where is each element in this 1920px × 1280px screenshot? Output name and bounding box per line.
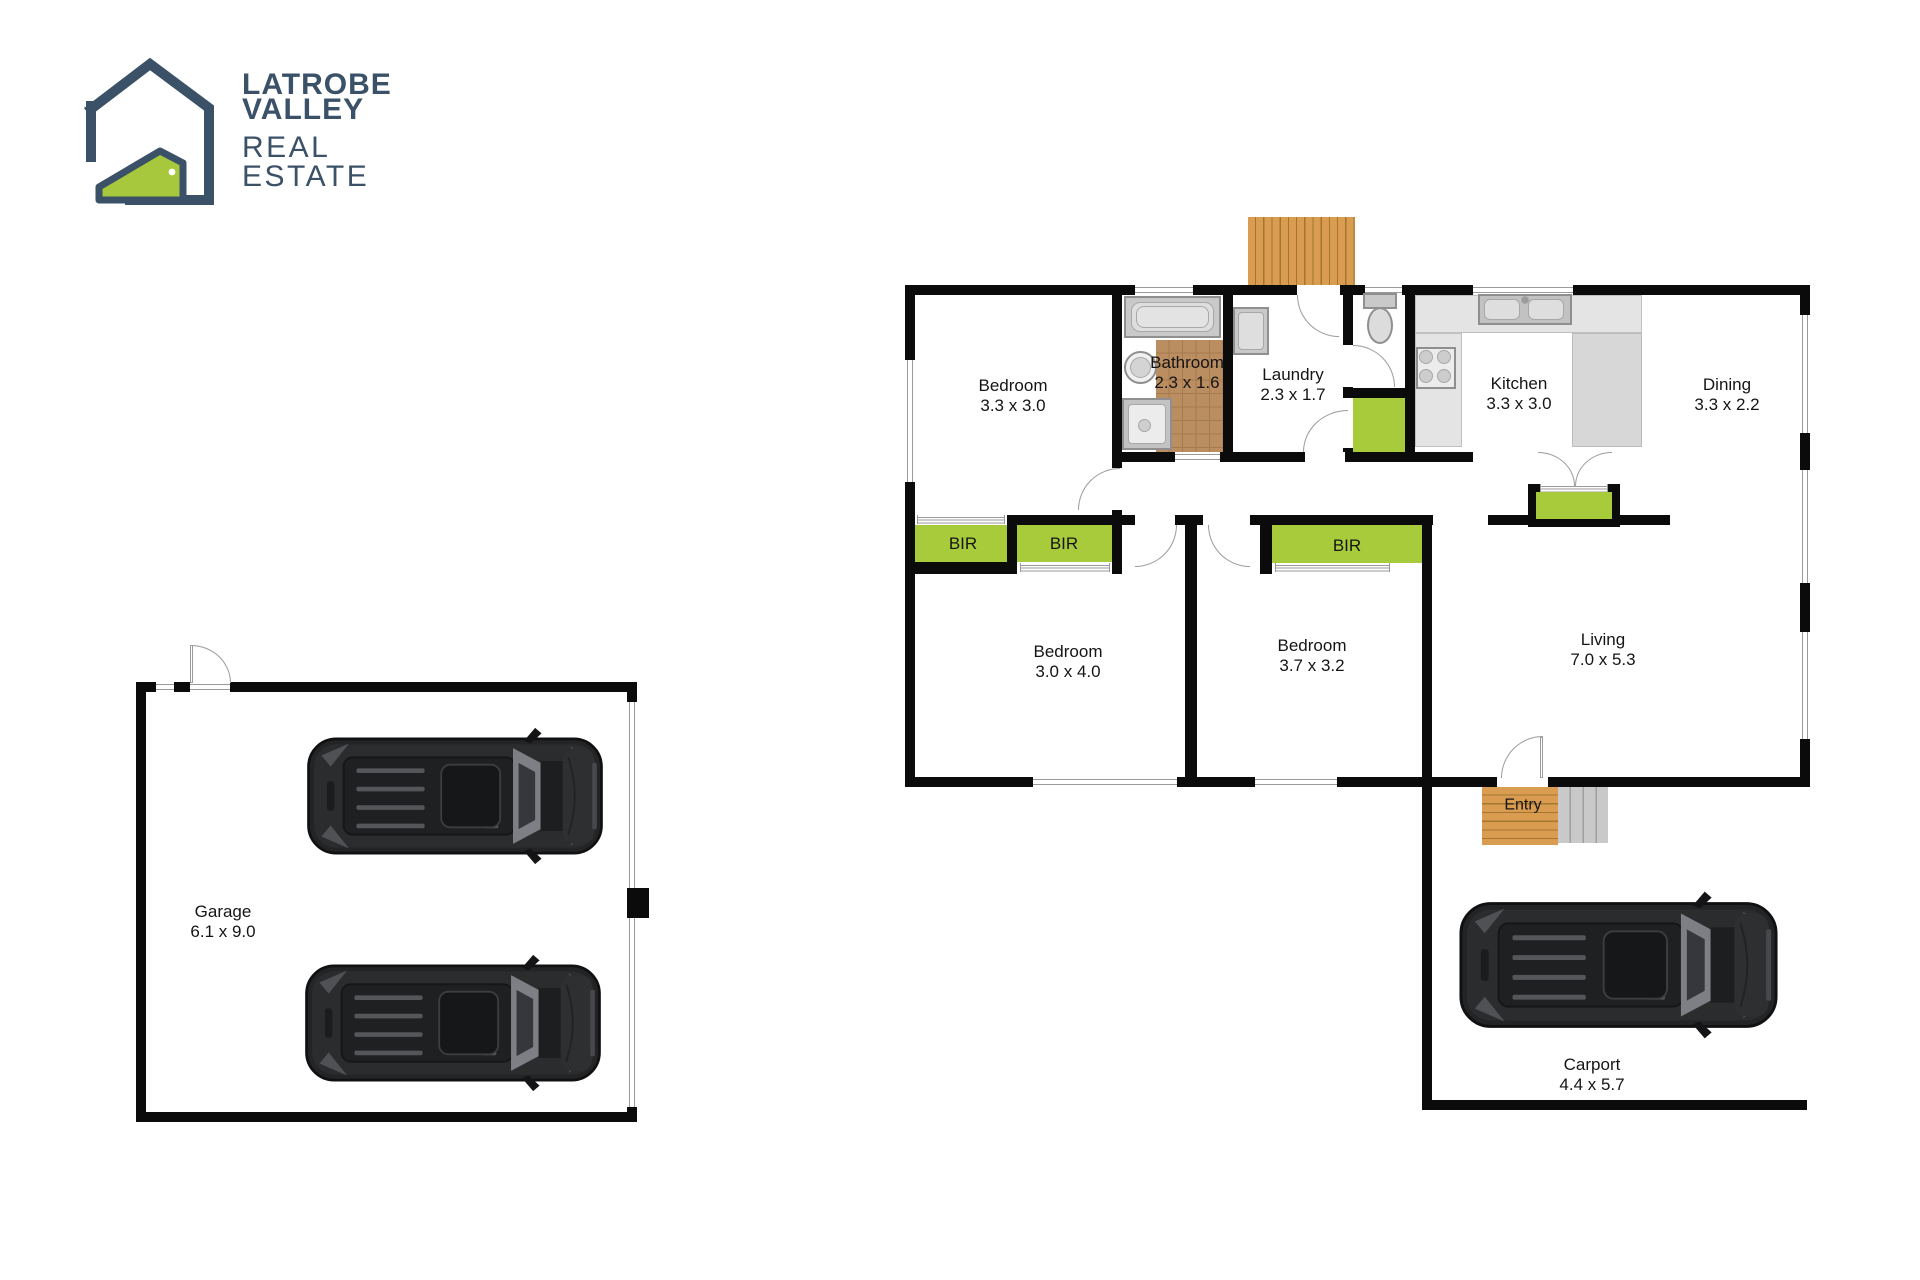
- room-name: Living: [1570, 630, 1635, 650]
- room-label-laundry: Laundry 2.3 x 1.7: [1260, 365, 1325, 405]
- robe-label: BIR: [1333, 536, 1361, 556]
- door-opening: [1343, 345, 1353, 387]
- door-opening: [1203, 515, 1250, 525]
- car-top-view: [300, 953, 606, 1093]
- door-leaf: [1540, 737, 1543, 778]
- door-arc: [1303, 410, 1348, 452]
- kitchen-sink-basin: [1528, 299, 1564, 320]
- robe-track: [1275, 563, 1390, 572]
- door-arc: [1135, 525, 1177, 567]
- room-name: Entry: [1504, 797, 1541, 816]
- brand-line-4: ESTATE: [242, 162, 392, 191]
- robe-track: [917, 515, 1005, 524]
- room-dims: 3.0 x 4.0: [1034, 662, 1103, 682]
- house-logo-icon: [84, 56, 216, 206]
- vanity-basin-inner: [1130, 357, 1151, 378]
- room-label-living: Living 7.0 x 5.3: [1570, 630, 1635, 670]
- burner: [1419, 350, 1433, 364]
- sliding-door-track: [1175, 452, 1220, 462]
- room-dims: 4.4 x 5.7: [1559, 1075, 1624, 1095]
- room-label-kitchen: Kitchen 3.3 x 3.0: [1486, 374, 1551, 414]
- door-arc: [1297, 295, 1339, 337]
- island-bench: [1572, 333, 1642, 447]
- room-name: Kitchen: [1486, 374, 1551, 394]
- door-opening: [1297, 285, 1340, 295]
- garage-door: [627, 918, 637, 1107]
- robe-text: BIR: [1333, 536, 1361, 556]
- car-top-view: [1455, 888, 1782, 1042]
- room-name: Bedroom: [1278, 636, 1347, 656]
- wall: [1112, 452, 1473, 462]
- bathtub-basin: [1136, 306, 1209, 328]
- door-leaf: [190, 645, 193, 683]
- rear-deck: [1248, 217, 1355, 285]
- burner: [1437, 369, 1451, 383]
- door-opening: [1305, 452, 1345, 462]
- room-dims: 3.7 x 3.2: [1278, 656, 1347, 676]
- wall: [1185, 515, 1197, 787]
- door-opening: [1497, 777, 1548, 787]
- robe-label: BIR: [949, 534, 977, 554]
- wall: [1012, 515, 1122, 525]
- room-name: Bathroom: [1150, 353, 1224, 373]
- window: [905, 360, 915, 482]
- room-label-garage: Garage 6.1 x 9.0: [190, 902, 255, 942]
- door-arc: [191, 645, 231, 683]
- room-dims: 2.3 x 1.7: [1260, 385, 1325, 405]
- room-name: Carport: [1559, 1055, 1624, 1075]
- window: [1800, 470, 1810, 583]
- robe-text: BIR: [949, 534, 977, 554]
- room-dims: 3.3 x 3.0: [979, 396, 1048, 416]
- window: [1800, 632, 1810, 739]
- room-name: Bedroom: [1034, 642, 1103, 662]
- toilet-bowl: [1367, 307, 1393, 344]
- wall: [627, 888, 649, 918]
- room-label-bathroom: Bathroom 2.3 x 1.6: [1150, 353, 1224, 393]
- robe-label: BIR: [1050, 534, 1078, 554]
- burner: [1419, 369, 1433, 383]
- wall: [905, 285, 1810, 295]
- room-label-bedroom1: Bedroom 3.3 x 3.0: [979, 376, 1048, 416]
- room-dims: 3.3 x 2.2: [1694, 395, 1759, 415]
- wall: [136, 1112, 637, 1122]
- laundry-sink-inner: [1238, 312, 1264, 350]
- kitchen-sink-basin: [1484, 299, 1520, 320]
- door-arc: [1538, 452, 1575, 486]
- wall: [905, 562, 1012, 574]
- door-opening: [1135, 515, 1175, 525]
- door-arc: [1575, 452, 1612, 486]
- room-dims: 6.1 x 9.0: [190, 922, 255, 942]
- room-dims: 2.3 x 1.6: [1150, 373, 1224, 393]
- room-label-entry: Entry: [1504, 797, 1541, 816]
- wall: [1422, 1100, 1807, 1110]
- wall: [136, 682, 146, 1122]
- wall: [1112, 515, 1122, 574]
- room-label-bedroom2: Bedroom 3.0 x 4.0: [1034, 642, 1103, 682]
- burner: [1437, 350, 1451, 364]
- pantry: [1536, 492, 1612, 519]
- shower-drain: [1138, 419, 1151, 432]
- room-label-bedroom3: Bedroom 3.7 x 3.2: [1278, 636, 1347, 676]
- room-name: Laundry: [1260, 365, 1325, 385]
- room-name: Garage: [190, 902, 255, 922]
- robe-track: [1020, 563, 1110, 572]
- room-label-dining: Dining 3.3 x 2.2: [1694, 375, 1759, 415]
- floorplan-page: LATROBE VALLEY REAL ESTATE: [0, 0, 1920, 1280]
- door-arc: [1208, 525, 1250, 567]
- window: [1033, 777, 1177, 787]
- linen-closet: [1353, 398, 1405, 452]
- wall: [1422, 515, 1432, 1110]
- window: [1135, 285, 1193, 295]
- wall: [1223, 295, 1233, 460]
- wall: [1353, 388, 1415, 398]
- door-arc: [1353, 345, 1395, 387]
- room-dims: 3.3 x 3.0: [1486, 394, 1551, 414]
- brand-wordmark: LATROBE VALLEY REAL ESTATE: [242, 72, 392, 191]
- window: [1255, 777, 1337, 787]
- room-name: Dining: [1694, 375, 1759, 395]
- room-label-carport: Carport 4.4 x 5.7: [1559, 1055, 1624, 1095]
- garage-door: [627, 702, 637, 888]
- room-name: Bedroom: [979, 376, 1048, 396]
- door-threshold: [190, 682, 230, 692]
- window: [156, 682, 174, 692]
- car-top-view: [302, 726, 608, 866]
- kitchen-tap: [1521, 296, 1529, 304]
- door-arc: [1078, 468, 1120, 510]
- room-dims: 7.0 x 5.3: [1570, 650, 1635, 670]
- brand-line-3: REAL: [242, 133, 392, 162]
- wall: [1260, 515, 1272, 574]
- wall: [1405, 295, 1415, 462]
- window: [1800, 315, 1810, 433]
- door-arc: [1501, 736, 1543, 778]
- robe-text: BIR: [1050, 534, 1078, 554]
- entry-steps: [1558, 787, 1608, 843]
